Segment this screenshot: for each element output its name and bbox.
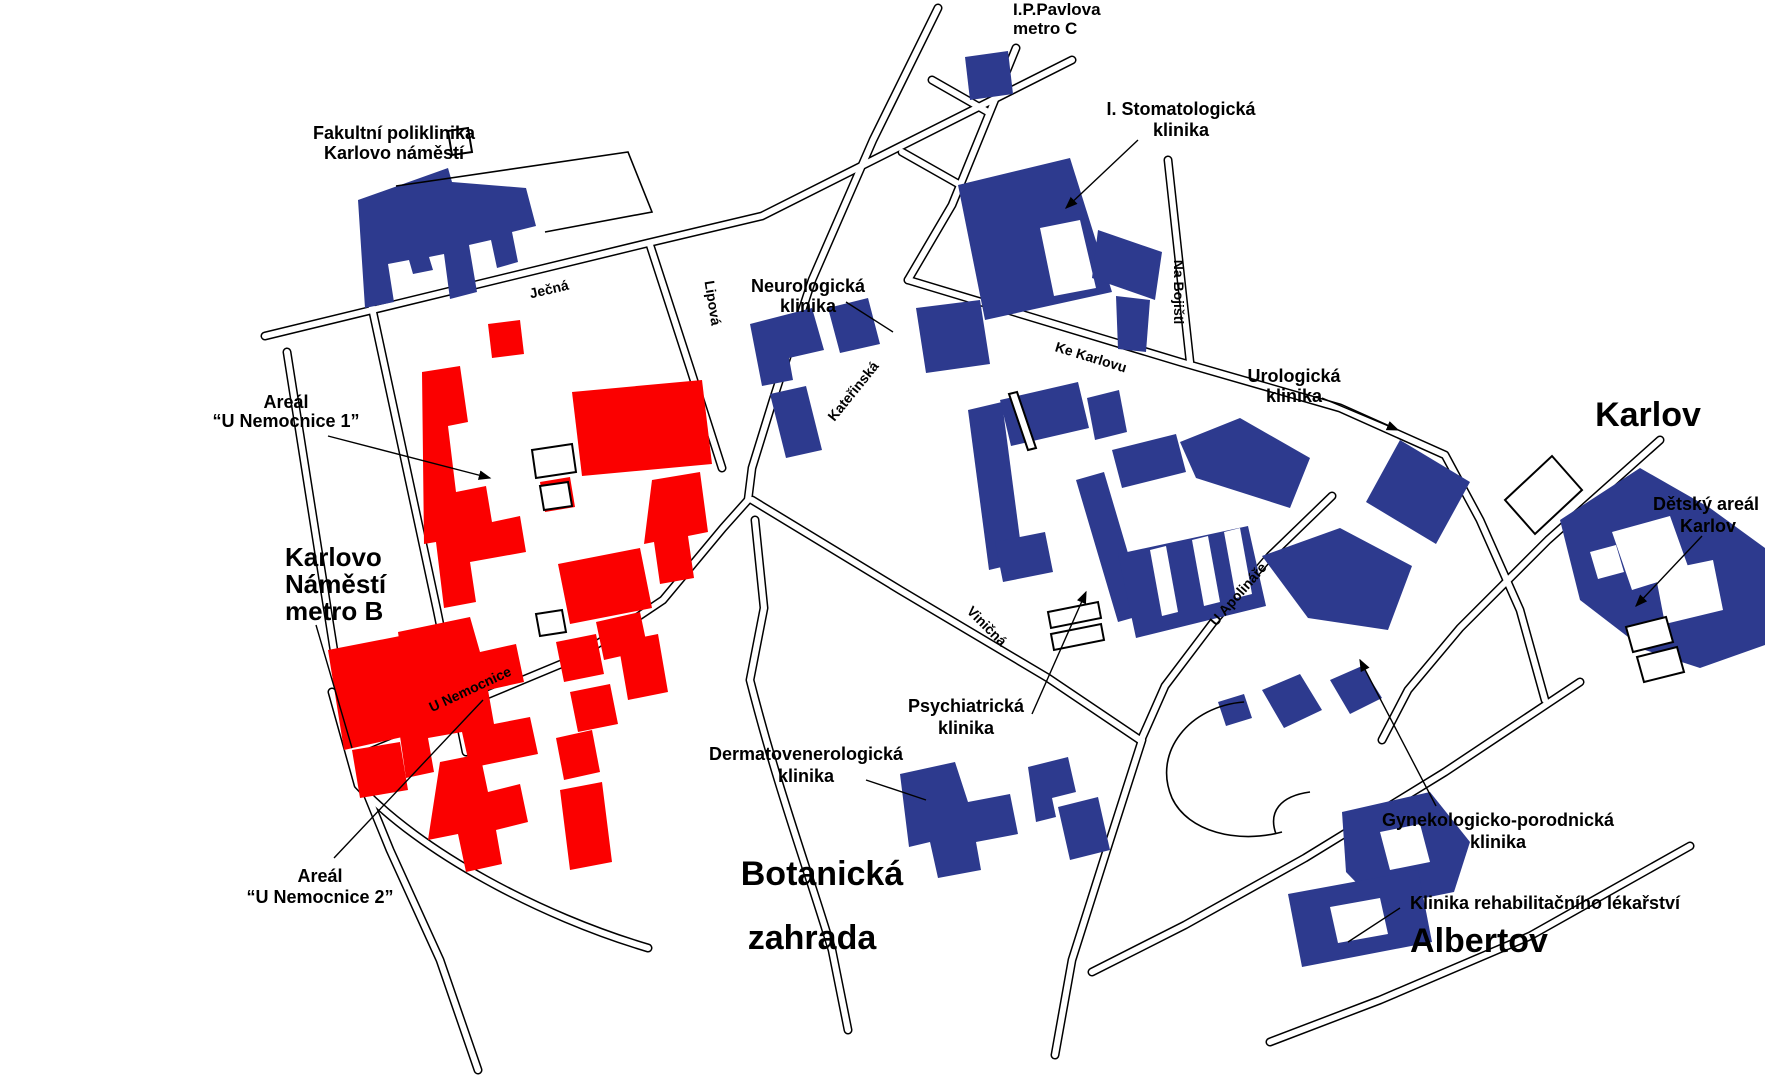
label-botanicka-line1: Botanická xyxy=(741,857,904,891)
label-psychiatricka-line1: Psychiatrická xyxy=(908,697,1024,715)
street-na-bojisti: Na Bojišti xyxy=(1172,260,1186,325)
label-gynekologicko-line2: klinika xyxy=(1470,833,1526,851)
label-areal-u-nemocnice-2-line1: Areál xyxy=(297,867,342,885)
label-albertov: Albertov xyxy=(1410,924,1548,958)
label-urologicka-line1: Urologická xyxy=(1247,367,1340,385)
label-botanicka-line2: zahrada xyxy=(748,921,877,955)
label-fakultni-line2: Karlovo náměstí xyxy=(324,144,464,162)
label-detsky-areal-line1: Dětský areál xyxy=(1653,495,1759,513)
label-rehabilitacni: Klinika rehabilitačního lékařství xyxy=(1410,894,1680,912)
building-urologicka xyxy=(1366,440,1470,544)
label-ip-pavlova-line1: I.P.Pavlova xyxy=(1013,1,1101,18)
label-dermatovenerologicka-line2: klinika xyxy=(778,767,834,785)
building-dermatovenerologicka xyxy=(900,762,1018,878)
label-karlov: Karlov xyxy=(1595,398,1701,432)
buildings-albertov-small xyxy=(1028,757,1110,860)
campus-map: I.P.Pavlova metro C Fakultní poliklinika… xyxy=(0,0,1765,1089)
label-neurologicka-line1: Neurologická xyxy=(751,277,865,295)
label-detsky-areal-line2: Karlov xyxy=(1680,517,1736,535)
label-stomatologicka-line2: klinika xyxy=(1153,121,1209,139)
label-gynekologicko-line1: Gynekologicko-porodnická xyxy=(1382,811,1614,829)
label-ip-pavlova-line2: metro C xyxy=(1013,20,1077,37)
label-fakultni-line1: Fakultní poliklinika xyxy=(313,124,475,142)
label-neurologicka-line2: klinika xyxy=(780,297,836,315)
label-psychiatricka-line2: klinika xyxy=(938,719,994,737)
label-karlovo-namesti-line3: metro B xyxy=(285,598,383,624)
building-ke-karlovu-block xyxy=(916,300,990,373)
label-urologicka-line2: klinika xyxy=(1266,387,1322,405)
label-karlovo-namesti-line1: Karlovo xyxy=(285,544,382,570)
label-dermatovenerologicka-line1: Dermatovenerologická xyxy=(709,745,903,763)
building-fakultni-poliklinika xyxy=(358,168,536,308)
label-areal-u-nemocnice-1-line2: “U Nemocnice 1” xyxy=(212,412,359,430)
label-areal-u-nemocnice-2-line2: “U Nemocnice 2” xyxy=(246,888,393,906)
building-ip-pavlova xyxy=(965,51,1013,100)
label-stomatologicka-line1: I. Stomatologická xyxy=(1106,100,1255,118)
label-karlovo-namesti-line2: Náměstí xyxy=(285,571,386,597)
label-areal-u-nemocnice-1-line1: Areál xyxy=(263,393,308,411)
